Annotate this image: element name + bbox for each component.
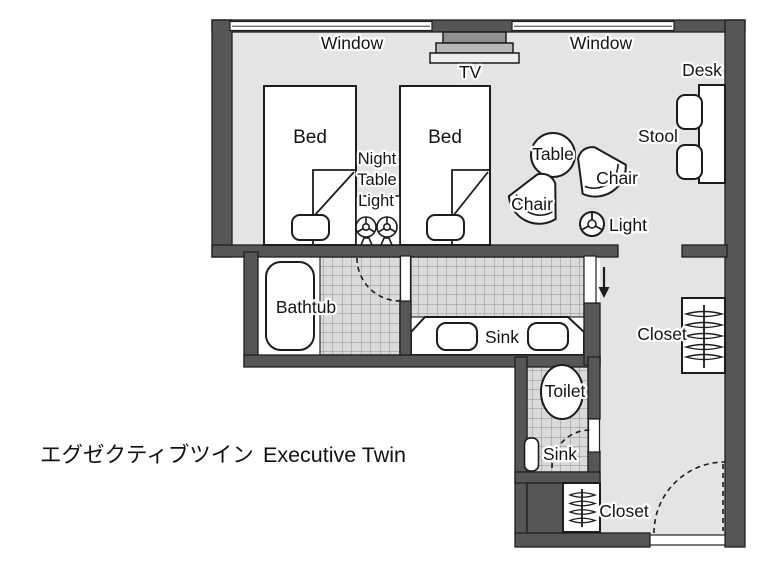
stool-bottom: [677, 145, 702, 179]
toilet-sink-label: Sink: [543, 444, 577, 464]
closet-entry-label: Closet: [599, 501, 649, 521]
toilet-label: Toilet: [545, 381, 586, 401]
wall-bathroom-left: [244, 252, 258, 366]
window-right-label: Window: [570, 33, 633, 53]
bed-left-pillow: [292, 215, 329, 240]
night-table-label-line1: Night: [358, 150, 397, 168]
night-lamp-left-hub: [363, 224, 369, 230]
bed-left-label: Bed: [293, 127, 327, 148]
bathtub-label: Bathtub: [276, 297, 336, 317]
floor-lamp-hub: [588, 220, 596, 228]
wall-left: [212, 20, 232, 257]
night-table-label-line2: Table: [357, 171, 396, 189]
wall-entry-closet-left: [527, 483, 563, 535]
tv-unit: [430, 32, 519, 63]
vanity-basin-right: [528, 323, 568, 350]
wall-bathroom-bottom: [244, 355, 600, 367]
floor-plan-page: Window Window TV Desk Stool Bed Bed Nigh…: [0, 0, 780, 585]
closet-entry-group: [563, 483, 600, 532]
vanity-sink-label: Sink: [485, 327, 519, 347]
table-label: Table: [532, 144, 574, 164]
entrance-door-opening: [650, 535, 725, 545]
vanity-room-tile-floor: [411, 257, 584, 317]
floor-lamp-group: [580, 212, 604, 236]
wall-right: [725, 20, 745, 547]
bed-right-pillow: [427, 215, 464, 240]
wall-bedroom-bottom-right: [682, 245, 727, 257]
tv-screen: [443, 32, 506, 43]
chair-right-label: Chair: [596, 168, 638, 188]
window-left-label: Window: [321, 33, 384, 53]
bed-left-group: [264, 86, 356, 245]
floor-plan-svg: Window Window TV Desk Stool Bed Bed Nigh…: [0, 0, 780, 585]
toilet-door: [589, 419, 600, 452]
chair-left-label: Chair: [511, 194, 553, 214]
wall-toilet-right-upper: [588, 357, 600, 419]
wall-bottom: [515, 533, 650, 547]
room-title-english: Executive Twin: [263, 443, 406, 467]
tv-label: TV: [459, 62, 482, 82]
tv-shelf: [436, 43, 513, 53]
floor-light-label: Light: [609, 215, 647, 235]
stool-top: [677, 95, 702, 129]
closet-hall-group: [682, 298, 725, 373]
entry-corridor-floor: [600, 245, 725, 535]
bathroom-sliding-door: [584, 256, 596, 303]
wall-bedroom-bottom-left: [212, 245, 618, 257]
night-lamp-right-hub: [384, 224, 390, 230]
desk-label: Desk: [682, 60, 722, 80]
stool-label: Stool: [638, 126, 678, 146]
night-table-label-line3: Light: [358, 192, 394, 210]
wall-entry-closet-top: [515, 472, 600, 483]
wall-bath-divider-stub: [400, 300, 411, 355]
bed-right-group: [400, 86, 490, 245]
room-title-japanese: エグゼクティブツイン: [40, 443, 254, 467]
toilet-room-sink: [525, 438, 539, 471]
bath-inner-door: [401, 256, 411, 301]
vanity-basin-left: [437, 323, 477, 350]
bed-right-label: Bed: [428, 127, 462, 148]
wall-vanity-right-stub: [584, 303, 600, 365]
closet-hall-label: Closet: [637, 324, 687, 344]
